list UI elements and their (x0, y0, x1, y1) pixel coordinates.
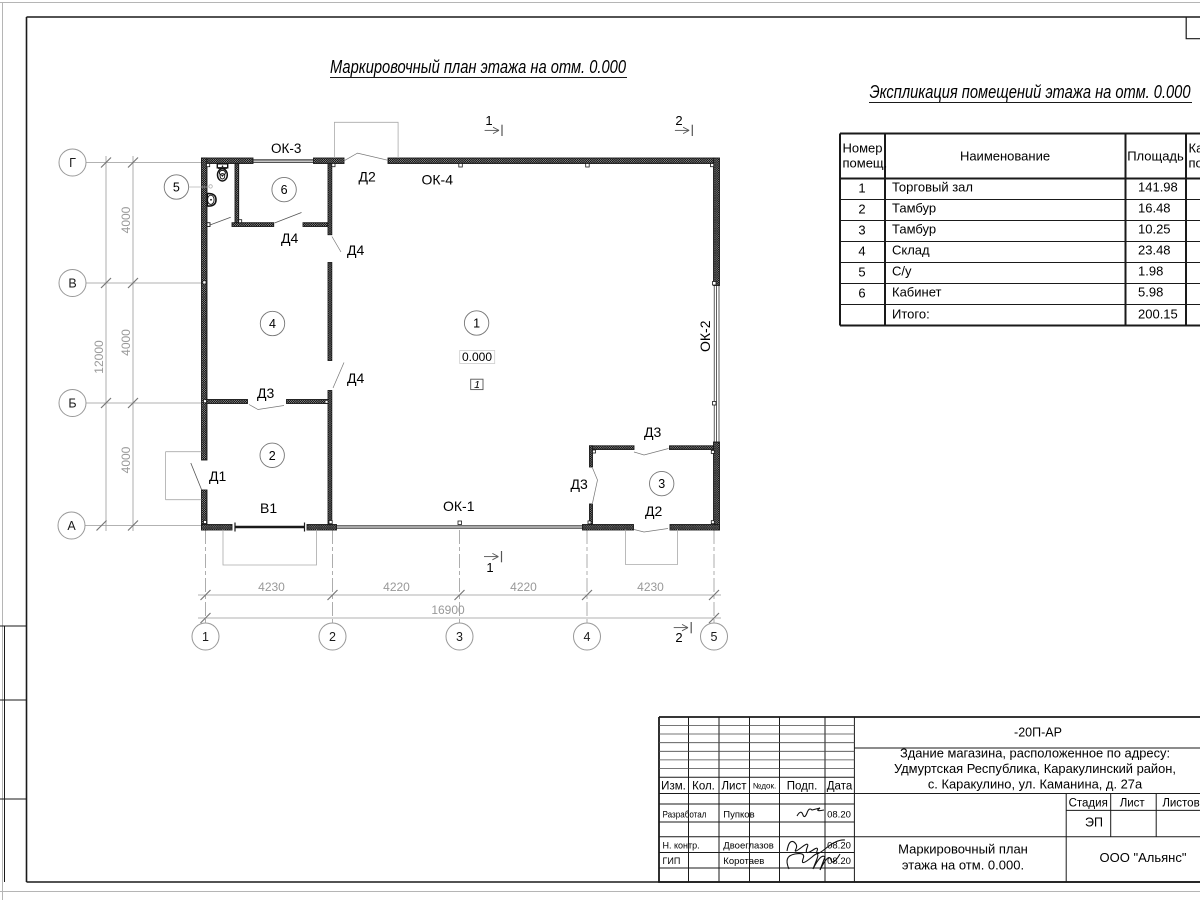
svg-text:ГИП: ГИП (663, 856, 681, 866)
svg-text:Д3: Д3 (571, 476, 588, 492)
svg-text:4220: 4220 (383, 580, 410, 594)
svg-text:2: 2 (269, 449, 276, 463)
svg-text:Маркировочный план этажа на от: Маркировочный план этажа на отм. 0.000 (330, 57, 626, 77)
svg-text:3: 3 (658, 477, 665, 491)
svg-text:Пупков: Пупков (723, 810, 754, 821)
svg-text:0.000: 0.000 (462, 350, 492, 364)
svg-text:Б: Б (68, 397, 76, 411)
svg-text:4000: 4000 (119, 446, 133, 473)
svg-text:А: А (67, 519, 76, 533)
svg-text:23.48: 23.48 (1138, 243, 1171, 258)
svg-text:Двоеглазов: Двоеглазов (723, 841, 774, 852)
svg-text:200.15: 200.15 (1138, 307, 1178, 322)
svg-text:Разработал: Разработал (663, 810, 707, 820)
svg-text:6: 6 (858, 286, 865, 301)
svg-text:1: 1 (858, 181, 865, 196)
svg-text:Д4: Д4 (347, 370, 364, 386)
svg-text:1: 1 (473, 317, 480, 331)
svg-text:Кол.: Кол. (692, 781, 715, 793)
svg-text:2: 2 (329, 630, 336, 644)
svg-text:Д2: Д2 (645, 503, 662, 519)
svg-text:16.48: 16.48 (1138, 201, 1171, 216)
svg-text:Листов: Листов (1162, 798, 1199, 810)
svg-text:ОК-1: ОК-1 (443, 498, 475, 514)
svg-text:16900: 16900 (431, 603, 465, 617)
svg-text:Подп.: Подп. (787, 781, 818, 793)
svg-text:Экспликация помещений этажа на: Экспликация помещений этажа на отм. 0.00… (870, 82, 1191, 102)
svg-text:Тамбур: Тамбур (892, 222, 936, 237)
svg-text:08.20: 08.20 (827, 841, 851, 852)
svg-text:с. Каракулино, ул. Каманина, д: с. Каракулино, ул. Каманина, д. 27а (928, 777, 1143, 792)
svg-text:С/у: С/у (892, 264, 912, 279)
svg-text:Наименование: Наименование (960, 149, 1050, 164)
svg-text:Удмуртская Республика, Каракул: Удмуртская Республика, Каракулинский рай… (894, 761, 1176, 776)
svg-text:Торговый зал: Торговый зал (892, 180, 973, 195)
svg-text:Ка: Ка (1189, 141, 1200, 156)
svg-text:Д1: Д1 (209, 468, 226, 484)
svg-text:Г: Г (69, 156, 76, 170)
svg-text:Стадия: Стадия (1069, 798, 1108, 810)
svg-text:3: 3 (456, 630, 463, 644)
svg-text:этажа на отм. 0.000.: этажа на отм. 0.000. (902, 858, 1024, 873)
svg-text:Изм.: Изм. (661, 781, 686, 793)
svg-text:5: 5 (858, 265, 865, 280)
svg-text:ОК-2: ОК-2 (697, 320, 713, 352)
svg-text:Склад: Склад (892, 243, 930, 258)
svg-text:Лист: Лист (1120, 798, 1146, 810)
svg-text:1: 1 (474, 379, 480, 391)
svg-text:12000: 12000 (92, 340, 106, 374)
svg-text:Коротаев: Коротаев (723, 856, 764, 867)
svg-text:2: 2 (675, 113, 682, 128)
svg-text:Маркировочный план: Маркировочный план (898, 842, 1028, 857)
svg-text:4: 4 (858, 244, 865, 259)
svg-text:3: 3 (858, 223, 865, 238)
svg-text:4220: 4220 (510, 580, 537, 594)
svg-text:08.20: 08.20 (827, 856, 851, 867)
svg-text:Д4: Д4 (281, 230, 298, 246)
svg-text:ЭП: ЭП (1085, 816, 1103, 830)
svg-text:4230: 4230 (258, 580, 285, 594)
svg-text:Номер: Номер (843, 141, 883, 156)
svg-text:08.20: 08.20 (827, 810, 851, 821)
svg-text:В1: В1 (260, 500, 277, 516)
svg-text:5: 5 (173, 181, 180, 195)
svg-text:№док.: №док. (753, 782, 776, 791)
svg-text:Площадь: Площадь (1127, 149, 1184, 164)
svg-text:Д3: Д3 (644, 424, 661, 440)
svg-text:4230: 4230 (637, 580, 664, 594)
svg-text:Д4: Д4 (347, 242, 364, 258)
svg-text:Д2: Д2 (359, 169, 376, 185)
svg-text:ОК-4: ОК-4 (422, 172, 454, 188)
svg-text:2: 2 (858, 202, 865, 217)
svg-text:ООО "Альянс": ООО "Альянс" (1100, 850, 1187, 865)
svg-text:4: 4 (584, 630, 591, 644)
svg-text:Здание магазина, расположенное: Здание магазина, расположенное по адресу… (900, 746, 1170, 761)
svg-text:ОК-3: ОК-3 (271, 141, 301, 156)
svg-text:2: 2 (675, 630, 682, 645)
svg-text:1: 1 (485, 113, 492, 128)
svg-text:В: В (68, 277, 76, 291)
svg-text:Итого:: Итого: (892, 307, 930, 322)
svg-text:4000: 4000 (119, 329, 133, 356)
svg-text:Кабинет: Кабинет (892, 285, 941, 300)
svg-text:Дата: Дата (827, 781, 853, 793)
svg-text:4000: 4000 (119, 206, 133, 233)
svg-text:1: 1 (486, 560, 493, 575)
svg-text:1.98: 1.98 (1138, 264, 1163, 279)
svg-text:Тамбур: Тамбур (892, 201, 936, 216)
svg-text:4: 4 (269, 317, 276, 331)
svg-text:-20П-АР: -20П-АР (1014, 726, 1062, 740)
svg-text:5.98: 5.98 (1138, 285, 1163, 300)
svg-text:по: по (1189, 156, 1200, 171)
svg-text:Н. контр.: Н. контр. (663, 841, 700, 851)
svg-text:5: 5 (711, 630, 718, 644)
svg-text:6: 6 (281, 183, 288, 197)
svg-text:Д3: Д3 (257, 385, 274, 401)
svg-text:1: 1 (202, 630, 209, 644)
svg-text:Лист: Лист (722, 781, 748, 793)
svg-text:141.98: 141.98 (1138, 180, 1178, 195)
svg-text:10.25: 10.25 (1138, 222, 1171, 237)
svg-text:помещ.: помещ. (843, 156, 888, 171)
